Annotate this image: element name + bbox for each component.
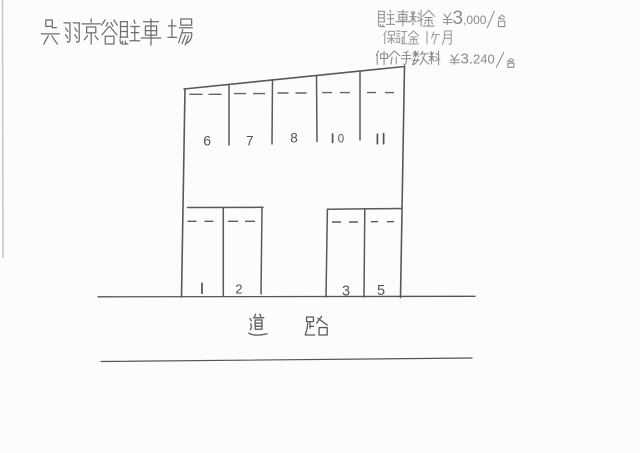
svg-text:3.240: 3.240 (461, 51, 495, 68)
svg-text:7: 7 (246, 134, 254, 149)
svg-text:6: 6 (203, 133, 211, 149)
svg-text:0: 0 (338, 134, 344, 146)
svg-text:8: 8 (290, 131, 298, 146)
svg-text:2: 2 (235, 282, 242, 297)
svg-text:3,000: 3,000 (453, 8, 487, 29)
